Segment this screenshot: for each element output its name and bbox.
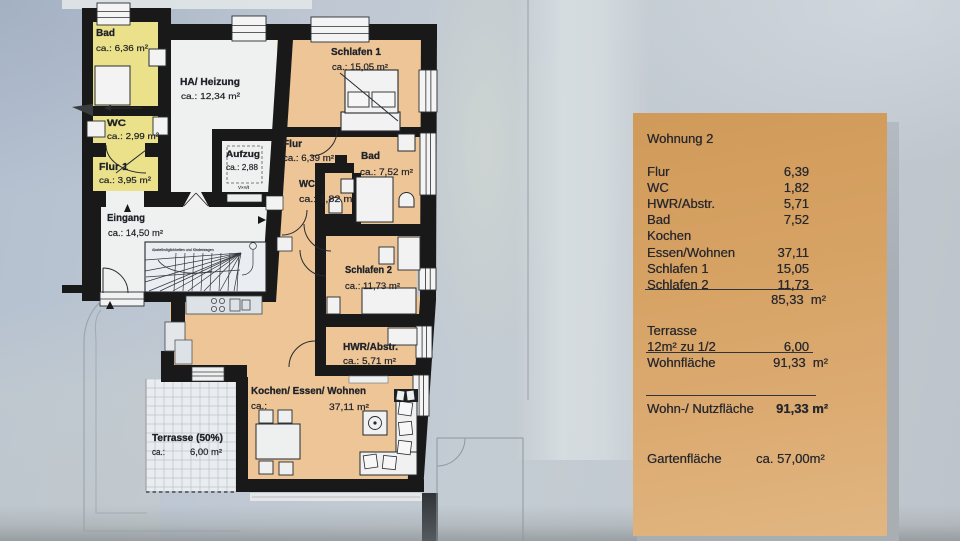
svg-text:ca.: 6,39 m²: ca.: 6,39 m² <box>283 153 334 163</box>
svg-text:ca.: 2,99 m²: ca.: 2,99 m² <box>107 131 159 141</box>
svg-text:Bad: Bad <box>96 28 115 39</box>
svg-text:ca.: 11,73 m²: ca.: 11,73 m² <box>345 281 400 291</box>
svg-text:WC: WC <box>299 179 315 190</box>
svg-text:Aufzug: Aufzug <box>226 149 260 160</box>
svg-text:37,11 m²: 37,11 m² <box>329 402 369 412</box>
svg-text:Flur 1: Flur 1 <box>99 162 128 173</box>
svg-text:HA/ Heizung: HA/ Heizung <box>180 76 240 88</box>
svg-text:ca.: 6,36 m²: ca.: 6,36 m² <box>96 43 148 53</box>
svg-text:Eingang: Eingang <box>107 212 145 224</box>
svg-text:ca.: 15,05 m²: ca.: 15,05 m² <box>332 62 388 72</box>
svg-text:V××/ℓ: V××/ℓ <box>238 185 250 190</box>
svg-text:Abstellmöglichkeiten und Kinde: Abstellmöglichkeiten und Kinderwagen <box>152 248 214 252</box>
svg-text:ca.: 5,71 m²: ca.: 5,71 m² <box>343 356 396 366</box>
svg-text:ca.: 3,95 m²: ca.: 3,95 m² <box>99 175 151 185</box>
svg-text:WC: WC <box>107 118 126 129</box>
svg-text:Terrasse (50%): Terrasse (50%) <box>152 433 223 444</box>
svg-text:6,00 m²: 6,00 m² <box>190 447 222 457</box>
svg-text:ca.: 1,82 m²: ca.: 1,82 m² <box>299 194 356 204</box>
svg-text:ca.: 7,52 m²: ca.: 7,52 m² <box>360 167 413 177</box>
svg-text:Flur: Flur <box>283 139 302 150</box>
svg-text:Schlafen 1: Schlafen 1 <box>331 46 381 58</box>
svg-text:ca.:: ca.: <box>251 401 267 411</box>
svg-text:ca.:: ca.: <box>152 447 165 457</box>
svg-text:Schlafen 2: Schlafen 2 <box>345 264 392 276</box>
svg-text:ca.: 12,34 m²: ca.: 12,34 m² <box>181 91 240 101</box>
svg-text:HWR/Abstr.: HWR/Abstr. <box>343 342 398 353</box>
svg-text:ca.: 2,88: ca.: 2,88 <box>226 162 258 172</box>
svg-text:Bad: Bad <box>361 151 380 162</box>
svg-text:Kochen/ Essen/ Wohnen: Kochen/ Essen/ Wohnen <box>251 385 366 397</box>
svg-text:ca.: 14,50 m²: ca.: 14,50 m² <box>108 228 163 238</box>
